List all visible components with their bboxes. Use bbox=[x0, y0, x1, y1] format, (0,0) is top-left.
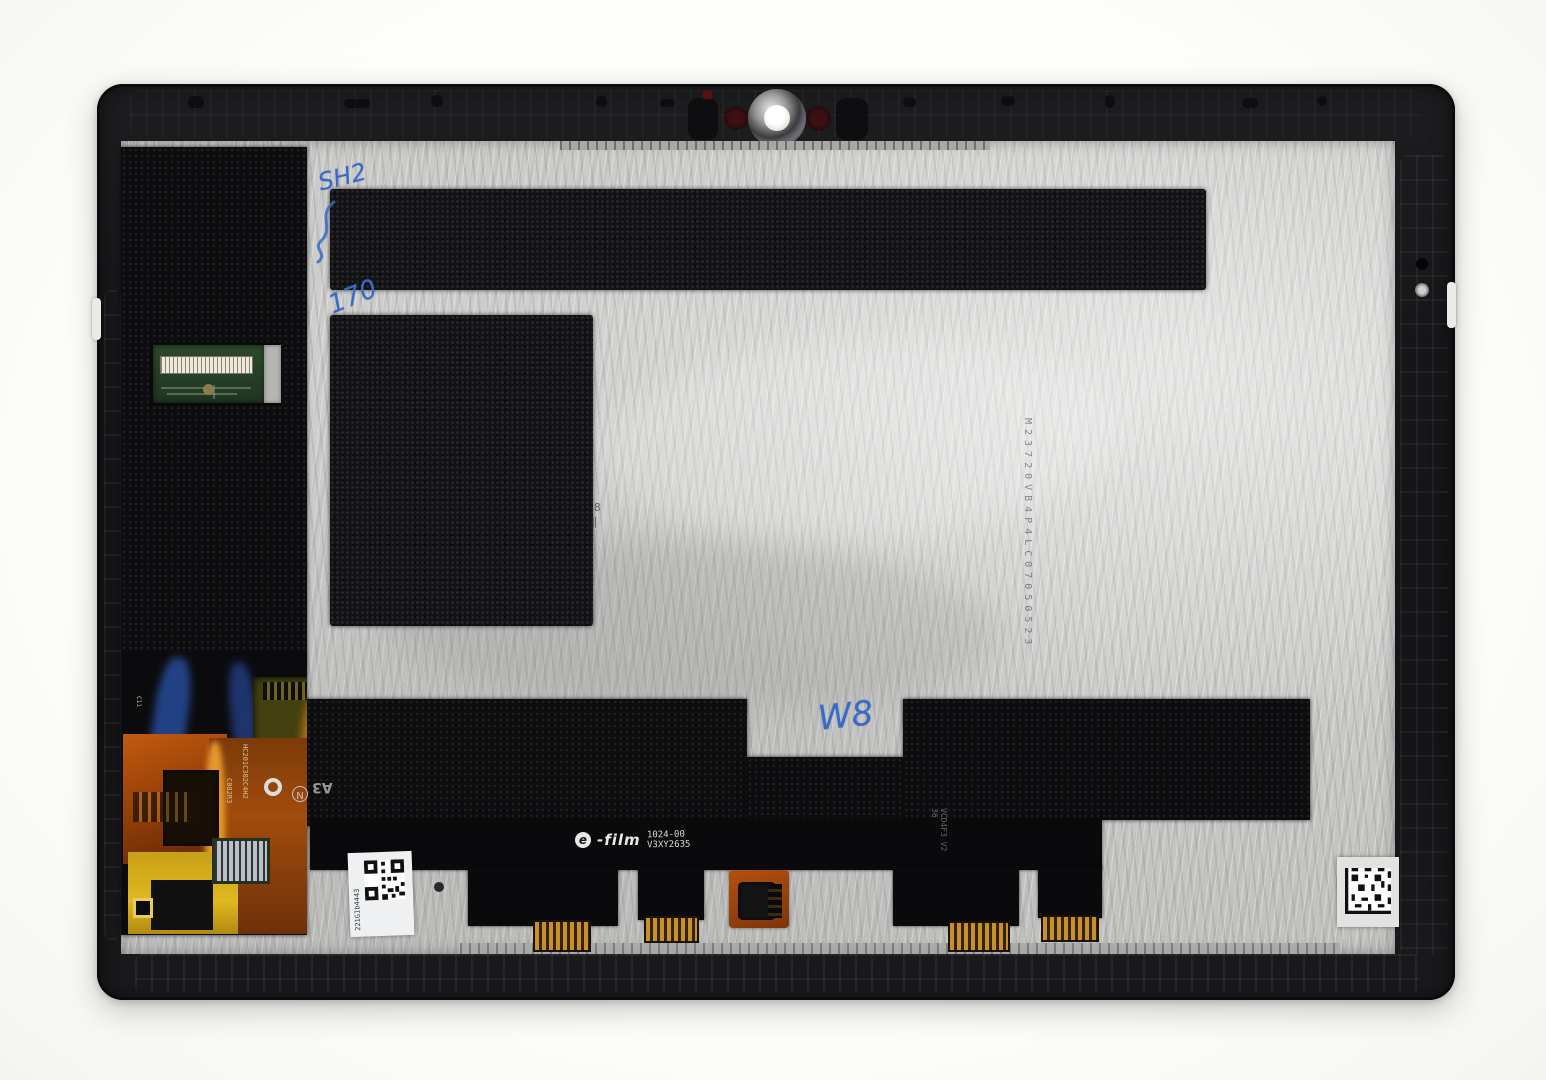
top-graphite-strip bbox=[330, 189, 1206, 290]
frame-bump-right bbox=[1447, 282, 1456, 328]
sticker-serial-text: 221G1b4443 bbox=[352, 859, 363, 931]
efilm-brand-text: -film bbox=[597, 831, 641, 849]
camera-bracket-right bbox=[836, 98, 868, 140]
camera-pad-left bbox=[724, 106, 748, 130]
main-flex-ribbon bbox=[310, 820, 1102, 870]
bezel-slot bbox=[188, 96, 204, 108]
efilm-part-line2: V3XY2635 bbox=[647, 840, 691, 851]
yellow-flex-window bbox=[151, 880, 213, 930]
camera-bracket-left bbox=[688, 98, 718, 140]
flex-tab-3 bbox=[893, 866, 1019, 926]
bezel-slot bbox=[1242, 98, 1258, 108]
flex-tab-2 bbox=[638, 866, 704, 920]
mid-graphite-pad bbox=[330, 315, 593, 626]
camera-led-window bbox=[703, 90, 712, 99]
frame-rib-bottom bbox=[135, 954, 1420, 994]
panel-top-edge-ticks bbox=[560, 141, 990, 150]
panel-hole bbox=[434, 882, 444, 892]
screw-hole-ring bbox=[264, 778, 282, 796]
bezel-slot bbox=[1317, 96, 1327, 106]
flex-tab-1 bbox=[468, 866, 618, 926]
flex-contacts-1 bbox=[533, 920, 591, 952]
a3-stamp: A3 bbox=[312, 779, 333, 795]
bezel-slot bbox=[596, 96, 607, 107]
bezel-slot bbox=[903, 97, 916, 107]
frame-rib-right bbox=[1400, 155, 1448, 955]
frame-rib-left bbox=[104, 290, 122, 940]
panel-serial-print: M23720VB4P4LC07050523 bbox=[1022, 418, 1033, 690]
datamatrix-icon bbox=[1345, 868, 1391, 914]
qr-code-sticker: 221G1b4443 bbox=[348, 851, 415, 937]
flex-code-print-1: HC201C302C4H2 bbox=[241, 744, 249, 864]
handwritten-squiggle bbox=[312, 200, 340, 264]
flex-tab-4 bbox=[1038, 866, 1102, 918]
olive-connector-teeth bbox=[263, 682, 307, 700]
flex-pads-row bbox=[133, 792, 193, 822]
bottom-pad-left bbox=[300, 699, 747, 826]
yellow-flex-pad bbox=[133, 898, 153, 918]
bottom-pad-bridge bbox=[747, 757, 903, 826]
photo-stage: M23720VB4P4LC07050523 8 ‖ e -film 1024-0… bbox=[0, 0, 1546, 1080]
camera-lens bbox=[764, 105, 790, 131]
flex-contacts-3 bbox=[948, 921, 1010, 952]
n-certification-logo: N bbox=[292, 786, 308, 802]
bottom-pad-right bbox=[903, 699, 1310, 820]
bezel-slot bbox=[431, 95, 443, 107]
bezel-slot bbox=[1105, 95, 1115, 108]
panel-bottom-edge bbox=[460, 943, 1340, 954]
frame-bump-left bbox=[92, 298, 101, 340]
frame-screw-hole bbox=[1415, 283, 1429, 297]
panel-small-print-8: 8 bbox=[594, 501, 601, 514]
bezel-slot bbox=[344, 99, 370, 108]
touch-ic-pins bbox=[768, 884, 782, 918]
camera-pad-right bbox=[806, 106, 831, 131]
flex-contacts-2 bbox=[644, 916, 699, 943]
flex-code-print-3: C11 bbox=[135, 696, 142, 726]
flex-contacts-4 bbox=[1041, 915, 1099, 942]
pcb-pad bbox=[203, 384, 214, 395]
flex-code-print-2: C082R3 bbox=[225, 778, 233, 838]
bezel-slot bbox=[1001, 96, 1015, 106]
lcd-ffc-connector bbox=[160, 356, 253, 374]
efilm-print: e -film 1024-00 V3XY2635 bbox=[575, 830, 690, 850]
datamatrix-sticker bbox=[1337, 857, 1399, 927]
handwritten-mark-center: W8 bbox=[816, 693, 875, 739]
flex-tab-code: VCD4F3 V2 36 bbox=[930, 808, 948, 864]
foam-spacer bbox=[264, 345, 281, 403]
bezel-slot bbox=[660, 99, 675, 107]
efilm-logo-icon: e bbox=[575, 832, 591, 848]
qr-code-icon bbox=[364, 859, 405, 900]
frame-hole-dark bbox=[1416, 258, 1428, 270]
